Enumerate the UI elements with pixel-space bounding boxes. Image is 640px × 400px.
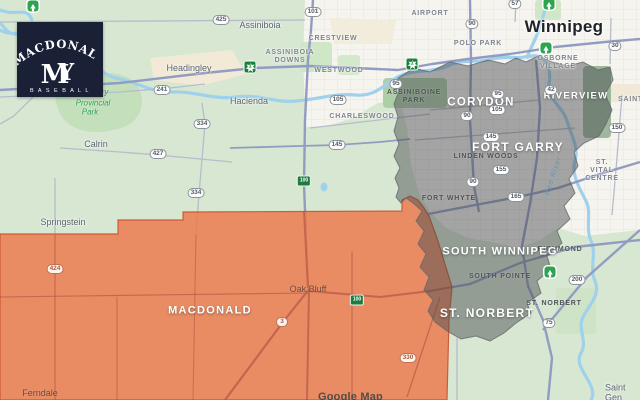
logo-artwork: MACDONALD M Y B A S E B A L L — [17, 22, 103, 97]
google-maps-watermark: Google Map — [318, 391, 383, 400]
map-screenshot: Assiniboia Headingley Hacienda Calrin Sp… — [0, 0, 640, 400]
logo-monogram-y: Y — [57, 59, 75, 86]
macdonald-baseball-logo: MACDONALD M Y B A S E B A L L — [17, 22, 103, 97]
macdonald-region-polygon — [0, 196, 452, 400]
logo-subtitle: B A S E B A L L — [30, 88, 90, 94]
